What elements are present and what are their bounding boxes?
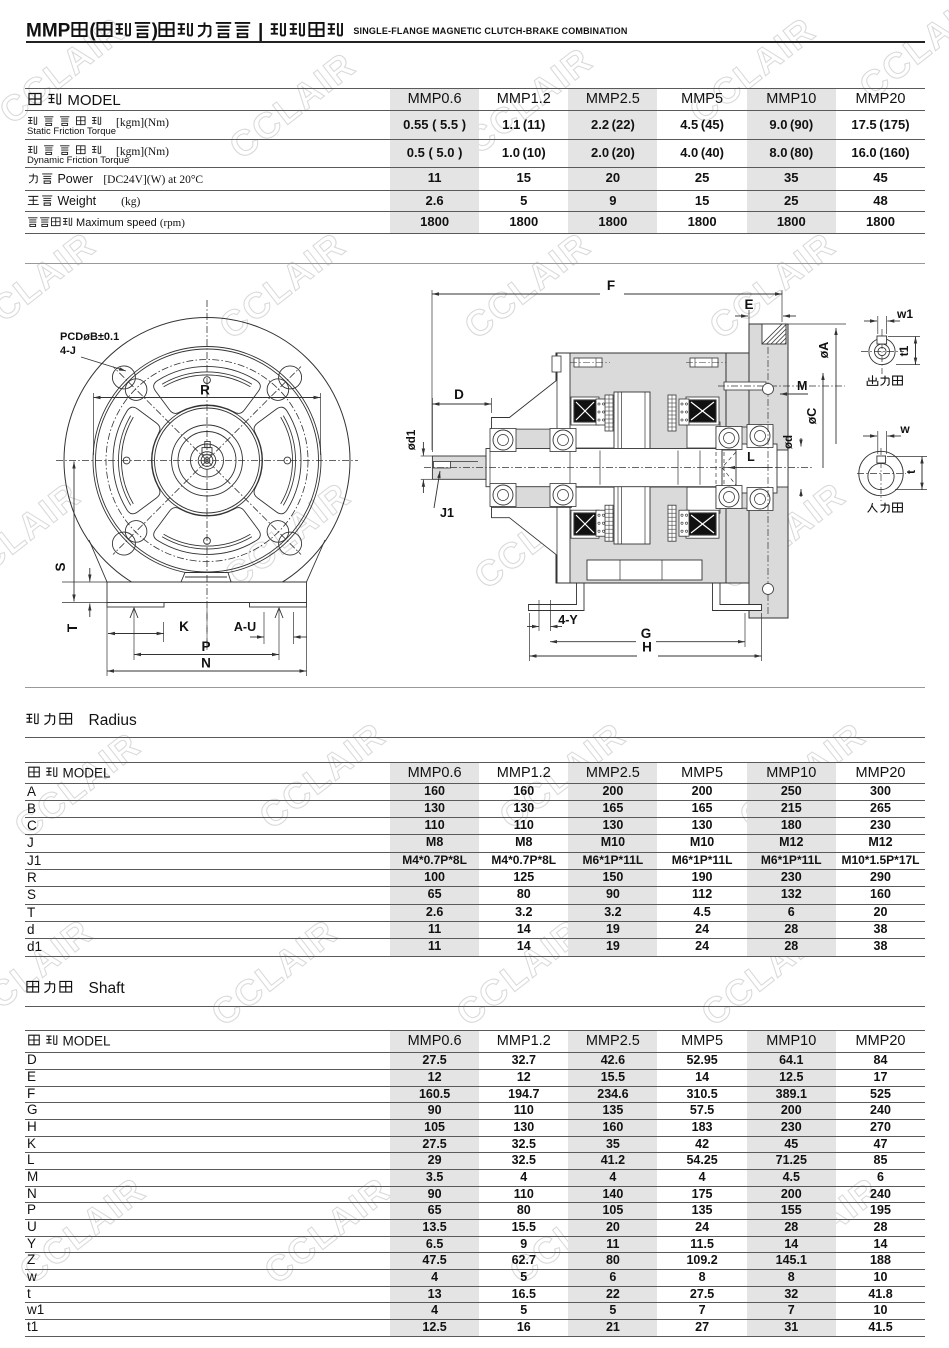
svg-text:CCLAIR: CCLAIR xyxy=(251,713,393,836)
svg-text:CCLAIR: CCLAIR xyxy=(203,910,345,1033)
svg-text:t1: t1 xyxy=(897,345,911,356)
svg-text:4-J: 4-J xyxy=(60,345,76,357)
svg-text:CCLAIR: CCLAIR xyxy=(221,43,363,166)
svg-text:R: R xyxy=(200,383,210,398)
svg-text:CCLAIR: CCLAIR xyxy=(256,1168,398,1291)
svg-text:J1: J1 xyxy=(440,506,454,520)
svg-text:ød: ød xyxy=(783,435,795,449)
svg-text:F: F xyxy=(607,278,615,293)
svg-text:T: T xyxy=(65,623,80,632)
svg-text:D: D xyxy=(454,387,464,402)
svg-text:N: N xyxy=(201,656,211,671)
svg-text:L: L xyxy=(747,450,755,464)
svg-text:K: K xyxy=(179,619,189,634)
svg-text:S: S xyxy=(53,562,68,571)
svg-text:P: P xyxy=(201,639,210,654)
svg-text:E: E xyxy=(744,297,753,312)
svg-text:PCDøB±0.1: PCDøB±0.1 xyxy=(60,331,119,343)
svg-text:w1: w1 xyxy=(896,307,913,321)
svg-text:CCLAIR: CCLAIR xyxy=(0,910,100,1033)
svg-text:ød1: ød1 xyxy=(406,429,418,450)
svg-text:øC: øC xyxy=(805,408,819,425)
svg-text:t: t xyxy=(904,470,918,474)
svg-text:M: M xyxy=(797,379,807,393)
svg-text:øA: øA xyxy=(817,342,831,359)
svg-text:A-U: A-U xyxy=(234,620,256,634)
svg-text:H: H xyxy=(642,640,652,655)
svg-text:w: w xyxy=(899,422,910,436)
svg-text:4-Y: 4-Y xyxy=(558,613,578,627)
